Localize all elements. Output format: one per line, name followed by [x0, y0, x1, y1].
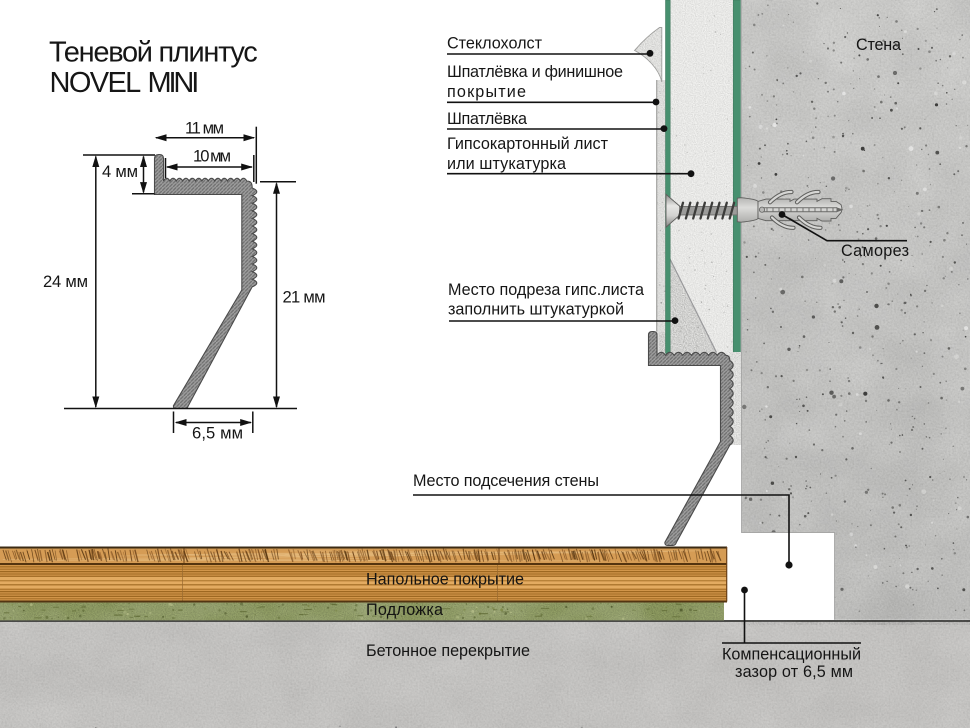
svg-text:24 мм: 24 мм: [43, 272, 88, 291]
svg-text:или штукатурка: или штукатурка: [447, 155, 566, 173]
svg-text:Гипсокартонный лист: Гипсокартонный лист: [447, 135, 609, 153]
svg-text:Бетонное перекрытие: Бетонное перекрытие: [366, 642, 530, 660]
svg-text:Саморез: Саморез: [841, 242, 909, 260]
svg-text:Стеклохолст: Стеклохолст: [447, 35, 543, 53]
svg-text:10 мм: 10 мм: [193, 147, 231, 166]
svg-text:Место подсечения стены: Место подсечения стены: [413, 472, 599, 490]
svg-text:заполнить штукатуркой: заполнить штукатуркой: [448, 301, 624, 319]
svg-text:Место подреза гипс.листа: Место подреза гипс.листа: [448, 281, 644, 299]
svg-text:зазор от 6,5 мм: зазор от 6,5 мм: [735, 663, 853, 681]
svg-text:Напольное покрытие: Напольное покрытие: [366, 571, 524, 589]
svg-text:4 мм: 4 мм: [102, 162, 138, 181]
svg-text:Теневой плинтус: Теневой плинтус: [49, 37, 257, 69]
svg-text:Подложка: Подложка: [366, 601, 443, 619]
svg-text:покрытие: покрытие: [447, 83, 526, 101]
svg-text:11 мм: 11 мм: [185, 119, 224, 138]
svg-text:NOVEL: NOVEL: [50, 67, 142, 99]
svg-text:MINI: MINI: [148, 67, 199, 99]
svg-text:Шпатлёвка: Шпатлёвка: [447, 110, 527, 128]
svg-text:Стена: Стена: [856, 36, 901, 54]
svg-text:Компенсационный: Компенсационный: [722, 646, 861, 664]
svg-text:Шпатлёвка и финишное: Шпатлёвка и финишное: [447, 63, 623, 81]
svg-text:6,5 мм: 6,5 мм: [192, 424, 243, 443]
svg-text:21 мм: 21 мм: [283, 288, 326, 307]
